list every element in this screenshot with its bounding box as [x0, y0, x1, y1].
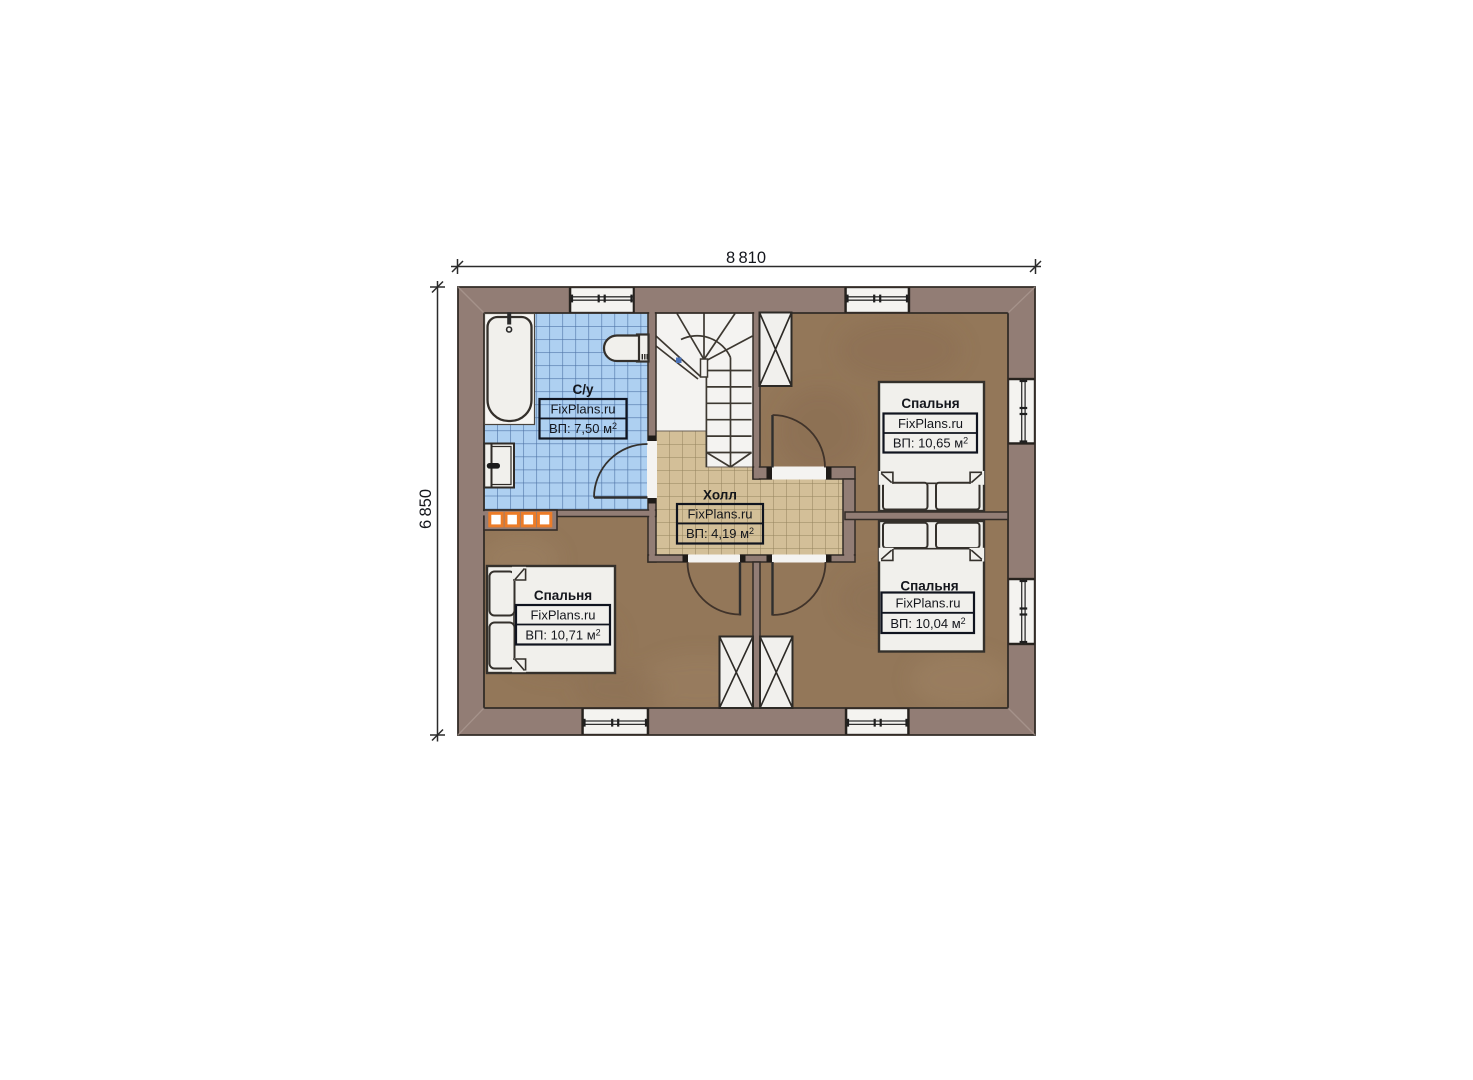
svg-text:FixPlans.ru: FixPlans.ru [895, 596, 960, 611]
svg-text:FixPlans.ru: FixPlans.ru [530, 608, 595, 623]
svg-text:FixPlans.ru: FixPlans.ru [898, 416, 963, 431]
svg-text:Спальня: Спальня [901, 396, 959, 411]
svg-text:8 810: 8 810 [726, 249, 766, 267]
svg-text:FixPlans.ru: FixPlans.ru [687, 507, 752, 522]
svg-text:6 850: 6 850 [417, 489, 435, 529]
svg-text:FixPlans.ru: FixPlans.ru [550, 402, 615, 417]
svg-text:ВП: 10,65 м2: ВП: 10,65 м2 [893, 436, 968, 451]
svg-text:ВП: 10,71 м2: ВП: 10,71 м2 [525, 628, 600, 643]
svg-text:Спальня: Спальня [534, 588, 592, 603]
svg-text:Спальня: Спальня [900, 579, 958, 594]
svg-text:ВП: 7,50 м2: ВП: 7,50 м2 [549, 421, 617, 436]
svg-text:Холл: Холл [703, 488, 737, 503]
svg-text:ВП: 4,19 м2: ВП: 4,19 м2 [686, 526, 754, 541]
svg-text:С/у: С/у [572, 382, 594, 397]
svg-text:ВП: 10,04 м2: ВП: 10,04 м2 [890, 616, 965, 631]
